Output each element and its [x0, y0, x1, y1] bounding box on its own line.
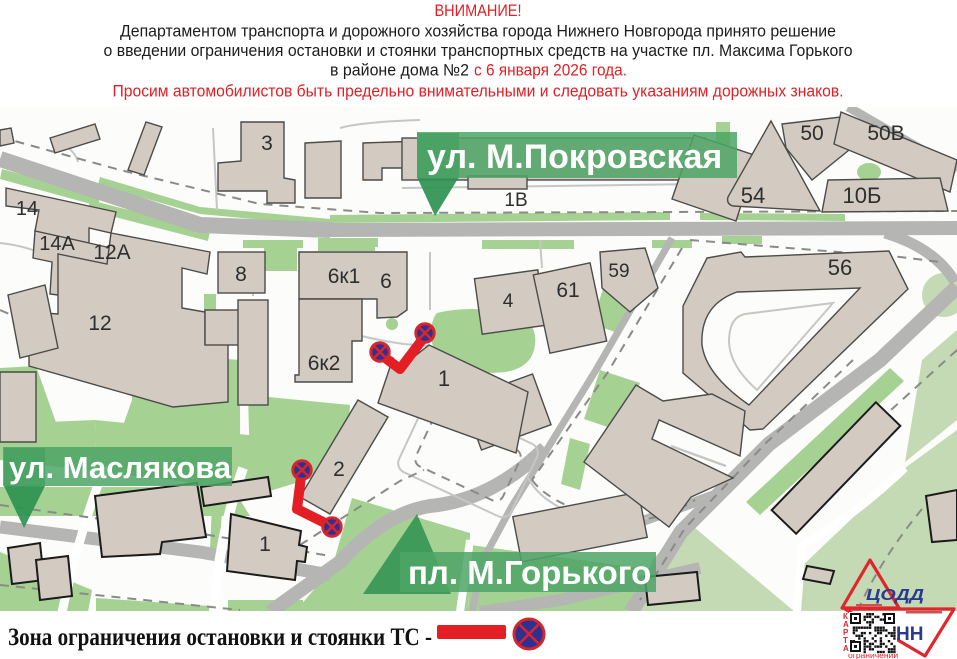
svg-text:6к1: 6к1	[328, 265, 361, 288]
svg-text:в районе дома №2: в районе дома №2	[330, 62, 469, 80]
svg-text:3: 3	[261, 132, 273, 155]
svg-text:1: 1	[438, 366, 450, 391]
svg-text:2: 2	[333, 458, 345, 481]
svg-text:ВНИМАНИЕ!: ВНИМАНИЕ!	[435, 2, 522, 20]
svg-text:с 6 января 2026 года.: с 6 января 2026 года.	[474, 62, 627, 80]
svg-text:61: 61	[556, 279, 579, 302]
svg-text:50В: 50В	[867, 122, 904, 145]
svg-text:пл. М.Горького: пл. М.Горького	[408, 554, 651, 591]
svg-text:1В: 1В	[504, 190, 527, 211]
svg-text:14: 14	[16, 198, 38, 220]
svg-text:ул. М.Покровская: ул. М.Покровская	[427, 138, 722, 176]
svg-text:12А: 12А	[93, 241, 130, 264]
svg-text:Департаментом транспорта и дор: Департаментом транспорта и дорожного хоз…	[120, 23, 836, 41]
svg-text:6: 6	[380, 270, 392, 293]
svg-text:12: 12	[88, 312, 111, 335]
svg-text:Зона ограничения остановки и с: Зона ограничения остановки и стоянки ТС …	[8, 624, 432, 651]
svg-text:1: 1	[259, 533, 271, 556]
svg-text:НН: НН	[896, 624, 923, 645]
svg-text:о введении ограничения останов: о введении ограничения остановки и стоян…	[104, 42, 853, 60]
svg-text:ЦОДД: ЦОДД	[866, 587, 925, 604]
svg-text:8: 8	[235, 263, 247, 286]
svg-text:50: 50	[800, 122, 823, 145]
svg-text:54: 54	[741, 183, 765, 208]
svg-text:4: 4	[503, 291, 514, 312]
svg-text:14А: 14А	[39, 233, 75, 255]
svg-text:Просим автомобилистов быть пре: Просим автомобилистов быть предельно вни…	[113, 83, 844, 101]
svg-text:59: 59	[608, 261, 629, 282]
svg-text:ул. Маслякова: ул. Маслякова	[9, 450, 232, 485]
svg-text:6к2: 6к2	[308, 352, 341, 375]
svg-text:10Б: 10Б	[843, 183, 882, 208]
svg-text:56: 56	[828, 255, 852, 280]
